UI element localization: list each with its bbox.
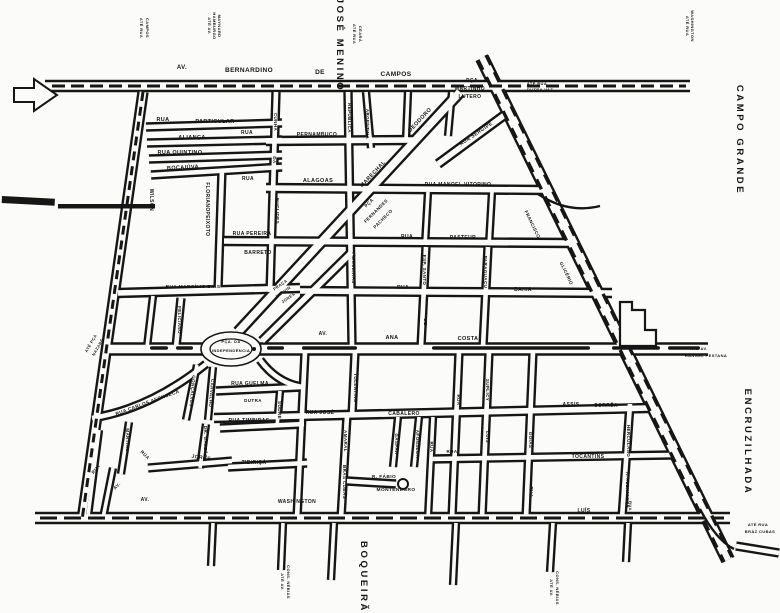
street-label: TOCANTINS <box>572 454 605 460</box>
street-label: TOLENTINO <box>353 373 358 403</box>
street-label: FILGUEIRAS <box>351 252 356 283</box>
street-label: RUA <box>156 117 169 123</box>
street-label: PEIXOTO <box>204 212 210 237</box>
street-label: LUTERO <box>459 94 482 100</box>
street-label: COSTA <box>458 336 479 342</box>
street-label: ATÉ RUA <box>352 24 357 44</box>
street-label: ATÉ RUA <box>685 16 690 36</box>
street-label: BRÁS CUBAS <box>342 465 348 499</box>
street-label: RUA GUELMA <box>231 381 269 387</box>
street-label: PARAGUAÇU <box>483 256 488 289</box>
road-stub-bar <box>2 196 55 206</box>
street-label: SODRÉ <box>277 401 284 419</box>
street-fill <box>482 58 728 560</box>
street-fill <box>626 523 628 562</box>
street-label: ATÉ AV. <box>549 579 554 596</box>
tram-dash <box>150 346 168 349</box>
street-label: PERNAMBUCO <box>297 132 337 138</box>
street-label: ANA <box>385 335 398 341</box>
street-label: DR. GALEÃO <box>203 426 209 458</box>
street-label: MARTINS <box>125 428 130 451</box>
street-label: RUA QUINTINO <box>158 150 203 156</box>
street-label: LUÍS <box>578 506 591 514</box>
street-label: BERNARDINO <box>225 67 273 74</box>
street-label: CORRÊA <box>594 401 618 409</box>
street-label: MAYNARD <box>217 15 222 38</box>
street-label: PARTICULAR <box>195 119 234 125</box>
street-label: AV. <box>141 497 150 503</box>
street-label: R. FÁBIO <box>372 473 396 480</box>
street-label: ATÉ RUA <box>139 18 144 38</box>
street-fill <box>281 523 283 570</box>
street-label: ARGENTINA <box>365 109 370 140</box>
street-label: RUA PEREIRA <box>233 231 272 237</box>
street-label: RUA <box>628 501 633 511</box>
street-label: CAMPOS <box>145 18 150 38</box>
street-label: RUA <box>529 487 534 498</box>
street-label: RUA <box>429 442 434 453</box>
street-label: ATÉ AV. <box>207 17 212 34</box>
street-label: AV. <box>319 331 328 337</box>
street-label: DE <box>315 69 325 76</box>
street-label: ESP. SANTO <box>422 255 427 286</box>
street-label: RANGEL PESTANA <box>685 353 727 358</box>
street-label: ATÉ RUA <box>527 81 547 86</box>
praca-dot <box>252 347 256 351</box>
street-label: ATÉ RUA <box>748 522 768 527</box>
street-label: RUA TIMBIRAS <box>228 418 269 424</box>
street-fill <box>406 92 408 140</box>
street-fill <box>300 291 612 293</box>
street-label: DUTRA <box>244 398 262 403</box>
street-label: PASTEUR <box>450 235 476 241</box>
street-label: MONTENEGRO <box>377 487 416 493</box>
street-label: SUPLICY <box>485 379 490 401</box>
road-stub-bar <box>58 204 155 209</box>
street-label: AV. <box>177 65 187 71</box>
street-label: FRANCISCO <box>523 210 541 240</box>
building-footprint <box>620 302 656 346</box>
street-label: AFONSECA <box>415 430 420 459</box>
street-label: AMARAL <box>343 430 348 452</box>
street-label: DE <box>423 318 428 325</box>
street-label: RUA MARCÍLIO DIAS <box>166 282 221 290</box>
street-label: FLORIANO <box>204 182 210 211</box>
street-label: RUA <box>242 176 254 182</box>
street-label: CONS. NÉBIAS <box>286 565 291 599</box>
street-label: EUCLIDES <box>275 198 280 224</box>
street-fill <box>147 140 282 143</box>
street-label: TIBIRIÇÁ <box>242 459 267 466</box>
street-label: CEARÁ <box>358 26 363 42</box>
street-label: GASPAR <box>394 433 399 455</box>
street-label: RUA <box>401 234 413 240</box>
scanned-street-map: AV.BERNARDINODECAMPOSPÇAMARTINHOLUTEROAT… <box>0 0 780 613</box>
street-label: RUA <box>447 449 458 454</box>
street-label: BAHIA <box>514 287 532 293</box>
street-fill <box>347 481 396 484</box>
street-fill <box>266 188 545 190</box>
street-label: ATÉ AV. <box>280 573 285 590</box>
street-label: CONS. NÉBIAS <box>555 571 560 605</box>
street-label: GOIÁS <box>528 432 534 449</box>
street-label: CUNHA <box>273 113 278 132</box>
street-label: ALAGOAS <box>303 178 333 184</box>
street-label: ASSIS <box>562 402 579 408</box>
tram-dash <box>432 346 590 349</box>
street-label: LUÍS <box>485 431 492 443</box>
district-label: JOSÉ MENINO <box>334 0 345 92</box>
map-svg: AV.BERNARDINODECAMPOSPÇAMARTINHOLUTEROAT… <box>0 0 780 613</box>
street-label: PÇA. DA <box>221 339 240 344</box>
street-label: BRÁZ CUBAS <box>745 529 775 534</box>
street-label: INDEPENDÊNCIA <box>212 348 250 353</box>
street-label: MARTINHO <box>455 86 485 92</box>
street-label: HAMBURGO <box>212 12 217 39</box>
street-label: CABALERO <box>388 411 420 417</box>
street-label: DUTRA VAZ <box>527 87 553 92</box>
street-fill <box>266 140 414 141</box>
tram-dash <box>267 346 284 349</box>
street-label: FELICIANO <box>177 306 182 334</box>
street-label: WASHINGTON <box>278 499 316 505</box>
street-label: RUA JOSÉ <box>306 408 335 416</box>
street-label: ALIANÇA <box>178 135 206 141</box>
street-fill <box>211 523 213 566</box>
tram-dash <box>302 346 357 349</box>
district-label: BOQUEIRÃO <box>358 541 369 613</box>
street-label: RUA <box>397 285 409 291</box>
street-label: RUA <box>139 449 151 461</box>
street-label: RUA <box>241 130 253 136</box>
street-label: CAMPOS <box>381 71 412 78</box>
tram-dash <box>176 346 193 349</box>
street-label: REPÚBLICA <box>347 103 353 133</box>
street-label: GLICÉRIO <box>559 260 576 286</box>
street-label: BARRETO <box>244 250 271 256</box>
street-label: RUA CARLOS AFONSECA <box>115 389 181 418</box>
street-fill <box>224 241 572 243</box>
district-label: ENCRUZILHADA <box>742 389 753 496</box>
street-label: WILSON <box>148 189 154 211</box>
street-label: HERCULANO <box>626 425 631 457</box>
district-label: CAMPO GRANDE <box>734 85 745 195</box>
street-label: RUA SERGIPE <box>459 121 495 148</box>
street-label: RUA <box>456 395 461 406</box>
street-label: ATÉ AV. <box>690 346 707 351</box>
railway-line <box>82 92 143 520</box>
street-label: RUA MANOEL VITORINO <box>425 182 492 188</box>
street-label: DA <box>272 156 277 164</box>
street-label: WASHINGTON <box>690 10 695 41</box>
street-label: PÇA <box>466 78 478 84</box>
